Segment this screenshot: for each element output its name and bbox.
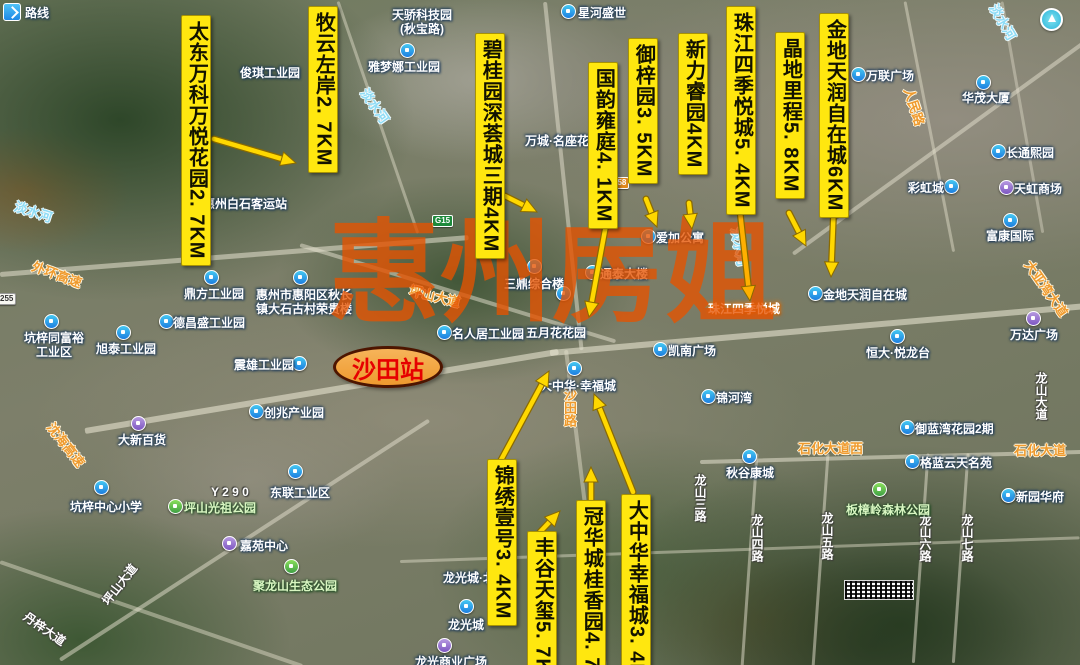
qr-code-banner	[844, 580, 914, 600]
poi-label[interactable]: 大中华·幸福城	[540, 379, 616, 393]
poi-label[interactable]: 锦河湾	[716, 391, 752, 405]
poi-label[interactable]: 富康国际	[986, 229, 1034, 243]
river-label: 淡水河	[727, 226, 752, 268]
arrow	[505, 196, 524, 205]
arrow	[646, 199, 652, 213]
arrow	[214, 139, 282, 159]
arrow	[600, 408, 633, 492]
poi-balloon-icon[interactable]	[872, 482, 887, 497]
road-name-label: 沈海高速	[43, 418, 90, 471]
poi-label[interactable]: 长通熙园	[1006, 146, 1054, 160]
poi-label[interactable]: 嘉苑中心	[240, 539, 288, 553]
poi-label[interactable]: 恒大·悦龙台	[866, 346, 930, 360]
poi-balloon-icon[interactable]	[900, 420, 915, 435]
poi-balloon-icon[interactable]	[999, 180, 1014, 195]
poi-balloon-icon[interactable]	[905, 454, 920, 469]
poi-label[interactable]: 旭泰工业园	[96, 342, 156, 356]
poi-label[interactable]: 彩虹城	[908, 181, 944, 195]
arrow-head	[683, 213, 697, 229]
arrow	[505, 196, 524, 205]
poi-balloon-icon[interactable]	[944, 179, 959, 194]
road-name-label: 石化大道	[1014, 440, 1066, 459]
road-name-label: 龙山三路	[692, 474, 709, 522]
compass-icon[interactable]	[1040, 8, 1063, 31]
poi-balloon-icon[interactable]	[567, 361, 582, 376]
poi-label[interactable]: 龙光商业广场	[415, 655, 487, 665]
poi-balloon-icon[interactable]	[585, 265, 600, 280]
poi-balloon-icon[interactable]	[94, 480, 109, 495]
poi-balloon-icon[interactable]	[527, 259, 542, 274]
road-name-label: 丹梓大道	[20, 608, 69, 649]
poi-balloon-icon[interactable]	[890, 329, 905, 344]
arrow-head	[545, 511, 560, 527]
distance-label-8: 金地天润自在城6KM	[819, 13, 849, 218]
arrow-head	[825, 262, 839, 277]
poi-label[interactable]: 万达广场	[1010, 328, 1058, 342]
poi-label[interactable]: 鼎方工业园	[184, 287, 244, 301]
poi-balloon-icon[interactable]	[292, 356, 307, 371]
arrow-head	[584, 467, 598, 482]
poi-balloon-icon[interactable]	[561, 4, 576, 19]
poi-balloon-icon[interactable]	[742, 449, 757, 464]
distance-label-5: 新力睿园4KM	[678, 33, 708, 175]
poi-label[interactable]: 大新百货	[118, 433, 166, 447]
road-line	[550, 303, 1080, 356]
poi-balloon-icon[interactable]	[116, 325, 131, 340]
road-name-label: 龙山六路	[917, 514, 934, 562]
poi-label[interactable]: 龙光城	[448, 618, 484, 632]
distance-label-4: 御梓园3. 5KM	[628, 38, 658, 184]
arrow-head	[520, 199, 537, 212]
road-name-label: Y 2 9 0	[211, 485, 249, 499]
road-name-label: 龙山五路	[819, 512, 836, 560]
poi-balloon-icon[interactable]	[808, 286, 823, 301]
road-line	[0, 560, 303, 665]
river-label: 淡水河	[986, 0, 1022, 43]
poi-balloon-icon[interactable]	[168, 499, 183, 514]
poi-label[interactable]: 万联广场	[866, 69, 914, 83]
poi-label[interactable]: 格蓝云天名苑	[920, 456, 992, 470]
road-name-label: 龙山四路	[749, 514, 766, 562]
road-shield-255: 255	[0, 293, 16, 305]
river-label: 淡水河	[12, 196, 55, 226]
arrow-head	[585, 301, 599, 317]
poi-balloon-icon[interactable]	[701, 389, 716, 404]
poi-balloon-icon[interactable]	[249, 404, 264, 419]
poi-balloon-icon[interactable]	[293, 270, 308, 285]
river-label: 淡水河	[356, 84, 394, 127]
arrow-head	[741, 285, 755, 301]
poi-label[interactable]: 三鼎综合楼	[504, 277, 564, 291]
distance-label-1: 牧云左岸2. 7KM	[308, 6, 338, 173]
road-line	[85, 349, 559, 434]
arrow	[689, 203, 690, 214]
poi-balloon-icon[interactable]	[437, 638, 452, 653]
road-name-label: 沙田路	[560, 388, 579, 427]
poi-label[interactable]: 坑梓中心小学	[70, 500, 142, 514]
route-button-label: 路线	[25, 4, 49, 21]
poi-balloon-icon[interactable]	[851, 67, 866, 82]
poi-label[interactable]: 通泰大楼	[600, 267, 648, 281]
distance-label-9: 锦绣壹号3. 4KM	[487, 459, 517, 626]
poi-balloon-icon[interactable]	[284, 559, 299, 574]
poi-balloon-icon[interactable]	[976, 75, 991, 90]
route-button[interactable]: 路线	[3, 3, 49, 21]
poi-label[interactable]: 秋谷康城	[726, 466, 774, 480]
poi-balloon-icon[interactable]	[556, 286, 571, 301]
poi-label[interactable]: 华茂大厦	[962, 91, 1010, 105]
arrow	[789, 213, 799, 233]
poi-balloon-icon[interactable]	[459, 599, 474, 614]
poi-balloon-icon[interactable]	[204, 270, 219, 285]
arrow-head	[645, 210, 658, 227]
poi-label[interactable]: 天虹商场	[1014, 182, 1062, 196]
poi-balloon-icon[interactable]	[288, 464, 303, 479]
poi-label[interactable]: 金地天润自在城	[823, 288, 907, 302]
poi-label[interactable]: 天骄科技园 (秋宝路)	[392, 8, 452, 37]
arrow	[689, 203, 690, 214]
poi-label[interactable]: 德昌盛工业园	[173, 316, 245, 330]
poi-label[interactable]: 东联工业区	[270, 486, 330, 500]
road-shield-G15: G15	[432, 215, 453, 227]
road-name-label: 龙山大道	[1033, 372, 1050, 420]
poi-label[interactable]: 板樟岭森林公园	[846, 503, 930, 517]
station-badge: 沙田站	[333, 346, 443, 388]
poi-balloon-icon[interactable]	[131, 416, 146, 431]
arrow	[214, 139, 282, 159]
satellite-map-canvas[interactable]: 惠州房姐 沙田站 路线 星河盛世天骄科技园 (秋宝路)雅梦娜工业园俊琪工业园惠州…	[0, 0, 1080, 665]
poi-label[interactable]: 坪山光祖公园	[184, 501, 256, 515]
poi-balloon-icon[interactable]	[44, 314, 59, 329]
poi-balloon-icon[interactable]	[1026, 311, 1041, 326]
poi-label[interactable]: 星河盛世	[578, 6, 626, 20]
arrow	[501, 384, 542, 460]
poi-label[interactable]: 聚龙山生态公园	[253, 579, 337, 593]
poi-label[interactable]: 名人居工业园	[452, 327, 524, 341]
distance-label-7: 晶地里程5. 8KM	[775, 32, 805, 199]
road-name-label: 龙山七路	[959, 514, 976, 562]
route-icon	[3, 3, 21, 21]
poi-label[interactable]: 凯南广场	[668, 344, 716, 358]
arrow	[501, 384, 542, 460]
poi-label[interactable]: 雅梦娜工业园	[368, 60, 440, 74]
distance-label-11: 冠华城桂香园4. 7KM	[576, 500, 606, 665]
distance-label-10: 丰谷天玺5. 7KM	[527, 531, 557, 665]
poi-balloon-icon[interactable]	[1003, 213, 1018, 228]
road-name-label: 外环高速	[30, 256, 85, 292]
poi-label[interactable]: 爱加公寓	[656, 231, 704, 245]
arrow-head	[593, 394, 606, 411]
distance-label-6: 珠江四季悦城5. 4KM	[726, 6, 756, 215]
poi-label[interactable]: 珠江四季悦城	[708, 302, 780, 316]
arrow-head	[280, 152, 296, 165]
road-name-label: 石化大道西	[798, 438, 863, 457]
poi-balloon-icon[interactable]	[991, 144, 1006, 159]
poi-label[interactable]: 坑梓同富裕 工业区	[24, 331, 84, 360]
poi-label[interactable]: 惠州白石客运站	[203, 197, 287, 211]
poi-label[interactable]: 御蓝湾花园2期	[915, 422, 994, 436]
distance-label-12: 大中华幸福城3. 4KM	[621, 494, 651, 665]
poi-balloon-icon[interactable]	[1001, 488, 1016, 503]
arrow	[600, 408, 633, 492]
arrow	[789, 213, 799, 233]
poi-balloon-icon[interactable]	[400, 43, 415, 58]
station-label: 沙田站	[352, 350, 424, 385]
poi-balloon-icon[interactable]	[653, 342, 668, 357]
poi-balloon-icon[interactable]	[641, 229, 656, 244]
poi-balloon-icon[interactable]	[222, 536, 237, 551]
distance-label-2: 碧桂园深荟城三期4KM	[475, 33, 505, 259]
poi-label[interactable]: 惠州市惠阳区秋长 镇大石古村荣贵楼	[256, 288, 352, 317]
poi-balloon-icon[interactable]	[437, 325, 452, 340]
poi-label[interactable]: 新园华府	[1016, 490, 1064, 504]
poi-label[interactable]: 创兆产业园	[264, 406, 324, 420]
distance-label-3: 国韵雍庭4. 1KM	[588, 62, 618, 229]
poi-label[interactable]: 五月花花园	[526, 326, 586, 340]
arrow	[646, 199, 652, 213]
poi-label[interactable]: 俊琪工业园	[240, 66, 300, 80]
distance-label-0: 太东万科万悦花园2. 7KM	[181, 15, 211, 266]
poi-label[interactable]: 震雄工业园	[234, 358, 294, 372]
poi-balloon-icon[interactable]	[159, 314, 174, 329]
